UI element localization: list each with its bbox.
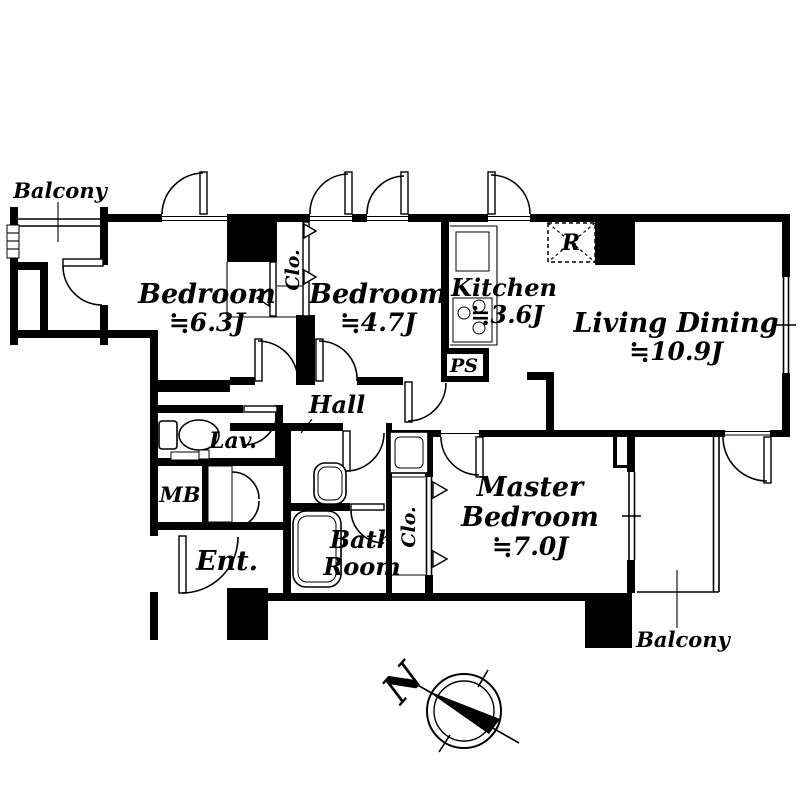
- refrigerator-label: R: [561, 230, 580, 256]
- living-dining-area: ≒10.9J: [629, 337, 725, 366]
- bedroom1-label: Bedroom: [137, 279, 276, 310]
- master-bedroom-label-2: Bedroom: [460, 502, 599, 533]
- floor-plan: Balcony Bedroom ≒6.3J Clo. Bedroom ≒4.7J…: [0, 0, 800, 800]
- bedroom2-area: ≒4.7J: [340, 308, 418, 337]
- master-bedroom-label-1: Master: [476, 472, 585, 503]
- kitchen-label: Kitchen: [450, 273, 557, 302]
- compass-north-label: N: [372, 653, 434, 714]
- bedroom1-top-window: [162, 172, 207, 214]
- pillar-entrance: [227, 588, 268, 640]
- balcony-lower-railing: [637, 437, 719, 592]
- meter-box-label: MB: [159, 482, 201, 507]
- pipe-space-label: PS: [449, 355, 478, 377]
- kitchen-area: ≒3.6J: [470, 300, 545, 329]
- pillar-top-right: [595, 214, 635, 265]
- compass-needle: [426, 690, 500, 734]
- washbasin-icon: [314, 463, 346, 504]
- bedroom2-top-window-2: [367, 172, 408, 214]
- balcony-lower-label: Balcony: [635, 627, 731, 652]
- lavatory-label: Lav.: [208, 428, 257, 454]
- shoe-closet-bifold: [208, 466, 259, 528]
- master-window: [622, 472, 641, 560]
- hatched-window: [7, 225, 19, 258]
- closet-master-marker-1: [433, 482, 447, 498]
- closet-master-marker-2: [433, 551, 447, 567]
- bedroom2-top-window-1: [310, 172, 352, 214]
- living-dining-label: Living Dining: [572, 308, 778, 339]
- balcony-lower-door: [723, 437, 771, 483]
- master-bedroom-area: ≒7.0J: [492, 532, 570, 561]
- balcony-upper-label: Balcony: [12, 178, 108, 203]
- kitchen-sink-icon: [456, 232, 489, 271]
- closet-upper-label: Clo.: [282, 249, 304, 290]
- windows-and-rails: [7, 202, 796, 628]
- balcony-upper-door: [63, 259, 103, 305]
- pillar-bottom-right: [585, 593, 632, 648]
- walls: [10, 207, 790, 648]
- kitchen-top-window: [488, 172, 530, 214]
- bathroom-label-2: Room: [322, 552, 400, 581]
- closet-master-label: Clo.: [398, 506, 420, 547]
- bedroom1-door: [255, 339, 298, 381]
- closet-door-marker-right-1: [304, 224, 316, 238]
- kitchen-door: [405, 382, 446, 422]
- master-bedroom-door: [441, 437, 483, 477]
- pillar-closet: [227, 214, 277, 262]
- bedroom1-area: ≒6.3J: [169, 308, 247, 337]
- entrance-label: Ent.: [195, 546, 258, 577]
- bedroom2-door: [316, 339, 357, 381]
- bathroom-label-1: Bath: [329, 525, 394, 554]
- living-window: [776, 277, 796, 373]
- bedroom2-label: Bedroom: [308, 279, 447, 310]
- hall-label: Hall: [308, 390, 365, 419]
- floor-plan-drawing: Balcony Bedroom ≒6.3J Clo. Bedroom ≒4.7J…: [0, 0, 800, 800]
- washroom-door: [343, 431, 384, 471]
- washer-pan-icon: [390, 432, 428, 473]
